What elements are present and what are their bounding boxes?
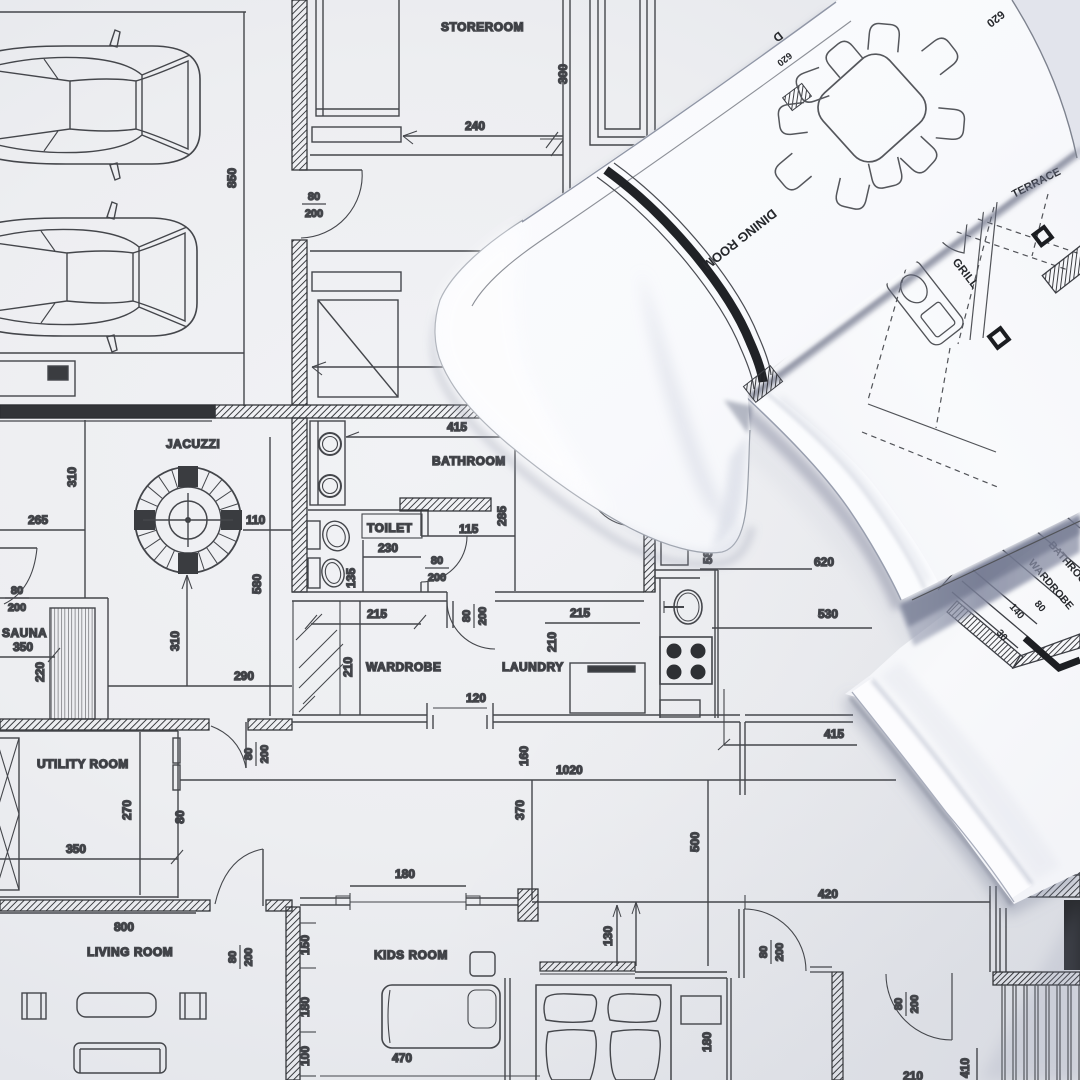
svg-text:230: 230 (378, 541, 398, 555)
svg-text:120: 120 (466, 691, 486, 705)
svg-text:80: 80 (227, 951, 239, 963)
svg-text:80: 80 (431, 555, 443, 567)
svg-text:265: 265 (28, 513, 48, 527)
svg-text:D: D (770, 29, 786, 46)
svg-text:415: 415 (447, 420, 467, 434)
svg-text:180: 180 (395, 867, 415, 881)
svg-text:80: 80 (308, 191, 320, 203)
svg-text:220: 220 (33, 662, 47, 682)
svg-text:215: 215 (570, 606, 590, 620)
svg-text:180: 180 (298, 997, 312, 1017)
svg-text:270: 270 (120, 800, 134, 820)
svg-text:300: 300 (556, 64, 570, 84)
svg-text:135: 135 (344, 568, 358, 588)
svg-text:215: 215 (367, 607, 387, 621)
svg-text:200: 200 (8, 602, 26, 614)
svg-text:1020: 1020 (556, 763, 583, 777)
svg-text:TOILET: TOILET (367, 521, 413, 535)
svg-text:415: 415 (824, 727, 844, 741)
svg-text:110: 110 (246, 513, 266, 527)
svg-text:115: 115 (459, 522, 479, 536)
svg-text:620: 620 (814, 555, 834, 569)
svg-text:SAUNA: SAUNA (2, 626, 47, 640)
svg-text:210: 210 (903, 1069, 923, 1080)
svg-text:200: 200 (477, 607, 489, 625)
svg-text:80: 80 (11, 585, 23, 597)
svg-text:80: 80 (243, 748, 255, 760)
svg-text:350: 350 (66, 842, 86, 856)
svg-text:LAUNDRY: LAUNDRY (502, 660, 564, 674)
svg-text:200: 200 (774, 943, 786, 961)
svg-text:150: 150 (298, 935, 312, 955)
svg-text:350: 350 (13, 640, 33, 654)
svg-text:500: 500 (688, 832, 702, 852)
svg-text:370: 370 (513, 800, 527, 820)
svg-text:80: 80 (758, 946, 770, 958)
svg-text:530: 530 (818, 607, 838, 621)
svg-text:JACUZZI: JACUZZI (166, 437, 220, 451)
svg-text:210: 210 (545, 632, 559, 652)
svg-text:285: 285 (495, 506, 509, 526)
svg-text:420: 420 (818, 887, 838, 901)
svg-text:80: 80 (173, 810, 187, 824)
svg-text:180: 180 (700, 1032, 714, 1052)
svg-text:200: 200 (428, 572, 446, 584)
svg-text:200: 200 (243, 948, 255, 966)
svg-text:160: 160 (517, 746, 531, 766)
svg-text:310: 310 (168, 631, 182, 651)
svg-text:130: 130 (601, 926, 615, 946)
svg-text:210: 210 (341, 657, 355, 677)
svg-text:200: 200 (909, 995, 921, 1013)
svg-text:410: 410 (958, 1058, 972, 1078)
svg-text:80: 80 (461, 610, 473, 622)
svg-text:290: 290 (234, 669, 254, 683)
svg-text:STOREROOM: STOREROOM (441, 20, 524, 34)
svg-text:850: 850 (225, 168, 239, 188)
svg-text:UTILITY ROOM: UTILITY ROOM (37, 757, 129, 771)
svg-text:240: 240 (465, 119, 485, 133)
svg-text:310: 310 (65, 467, 79, 487)
svg-text:KIDS ROOM: KIDS ROOM (374, 948, 448, 962)
svg-text:100: 100 (298, 1046, 312, 1066)
svg-text:200: 200 (305, 208, 323, 220)
svg-text:200: 200 (259, 745, 271, 763)
svg-text:580: 580 (250, 574, 264, 594)
svg-text:WARDROBE: WARDROBE (366, 660, 441, 674)
svg-text:80: 80 (893, 998, 905, 1010)
svg-text:BATHROOM: BATHROOM (432, 454, 506, 468)
svg-text:800: 800 (114, 920, 134, 934)
svg-text:LIVING ROOM: LIVING ROOM (87, 945, 173, 959)
svg-text:470: 470 (392, 1051, 412, 1065)
